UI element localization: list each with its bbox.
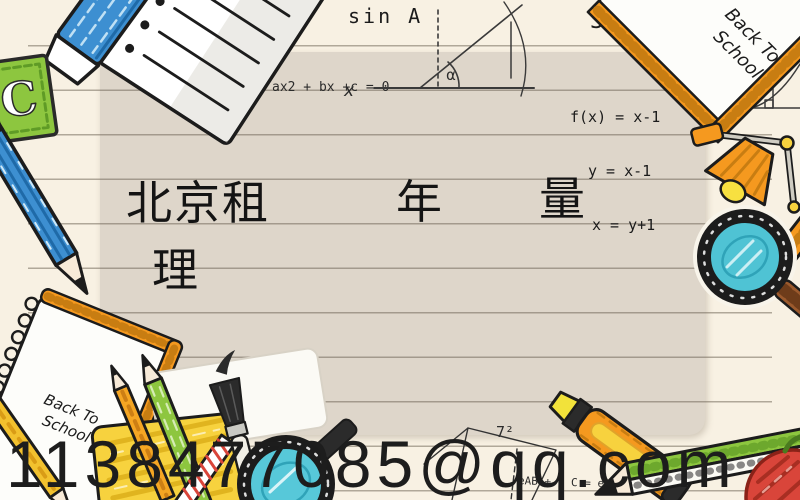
notebook-diamond-icon: Back To School (579, 0, 800, 142)
title-segment-2: 年 (396, 166, 444, 232)
x-axis-label: x (343, 81, 355, 101)
title-segment-1: 北京租 (126, 167, 270, 233)
letter-card: C (0, 55, 57, 143)
doodle-decorations: x α (0, 0, 800, 500)
magnifier-icon-right (696, 208, 800, 328)
title-segment-3: 量 (539, 163, 587, 229)
back-to-school-poster: sin A ax2 + bx +c = 0 3X2+ f(x) = x-1 y … (0, 0, 800, 500)
alpha-label: α (446, 66, 456, 84)
contact-email: 1138477085@qq.com (6, 426, 800, 500)
title-segment-4: 理 (152, 234, 200, 300)
angle-diagram-icon: x α (343, 2, 534, 101)
notepad-icon (98, 0, 337, 145)
